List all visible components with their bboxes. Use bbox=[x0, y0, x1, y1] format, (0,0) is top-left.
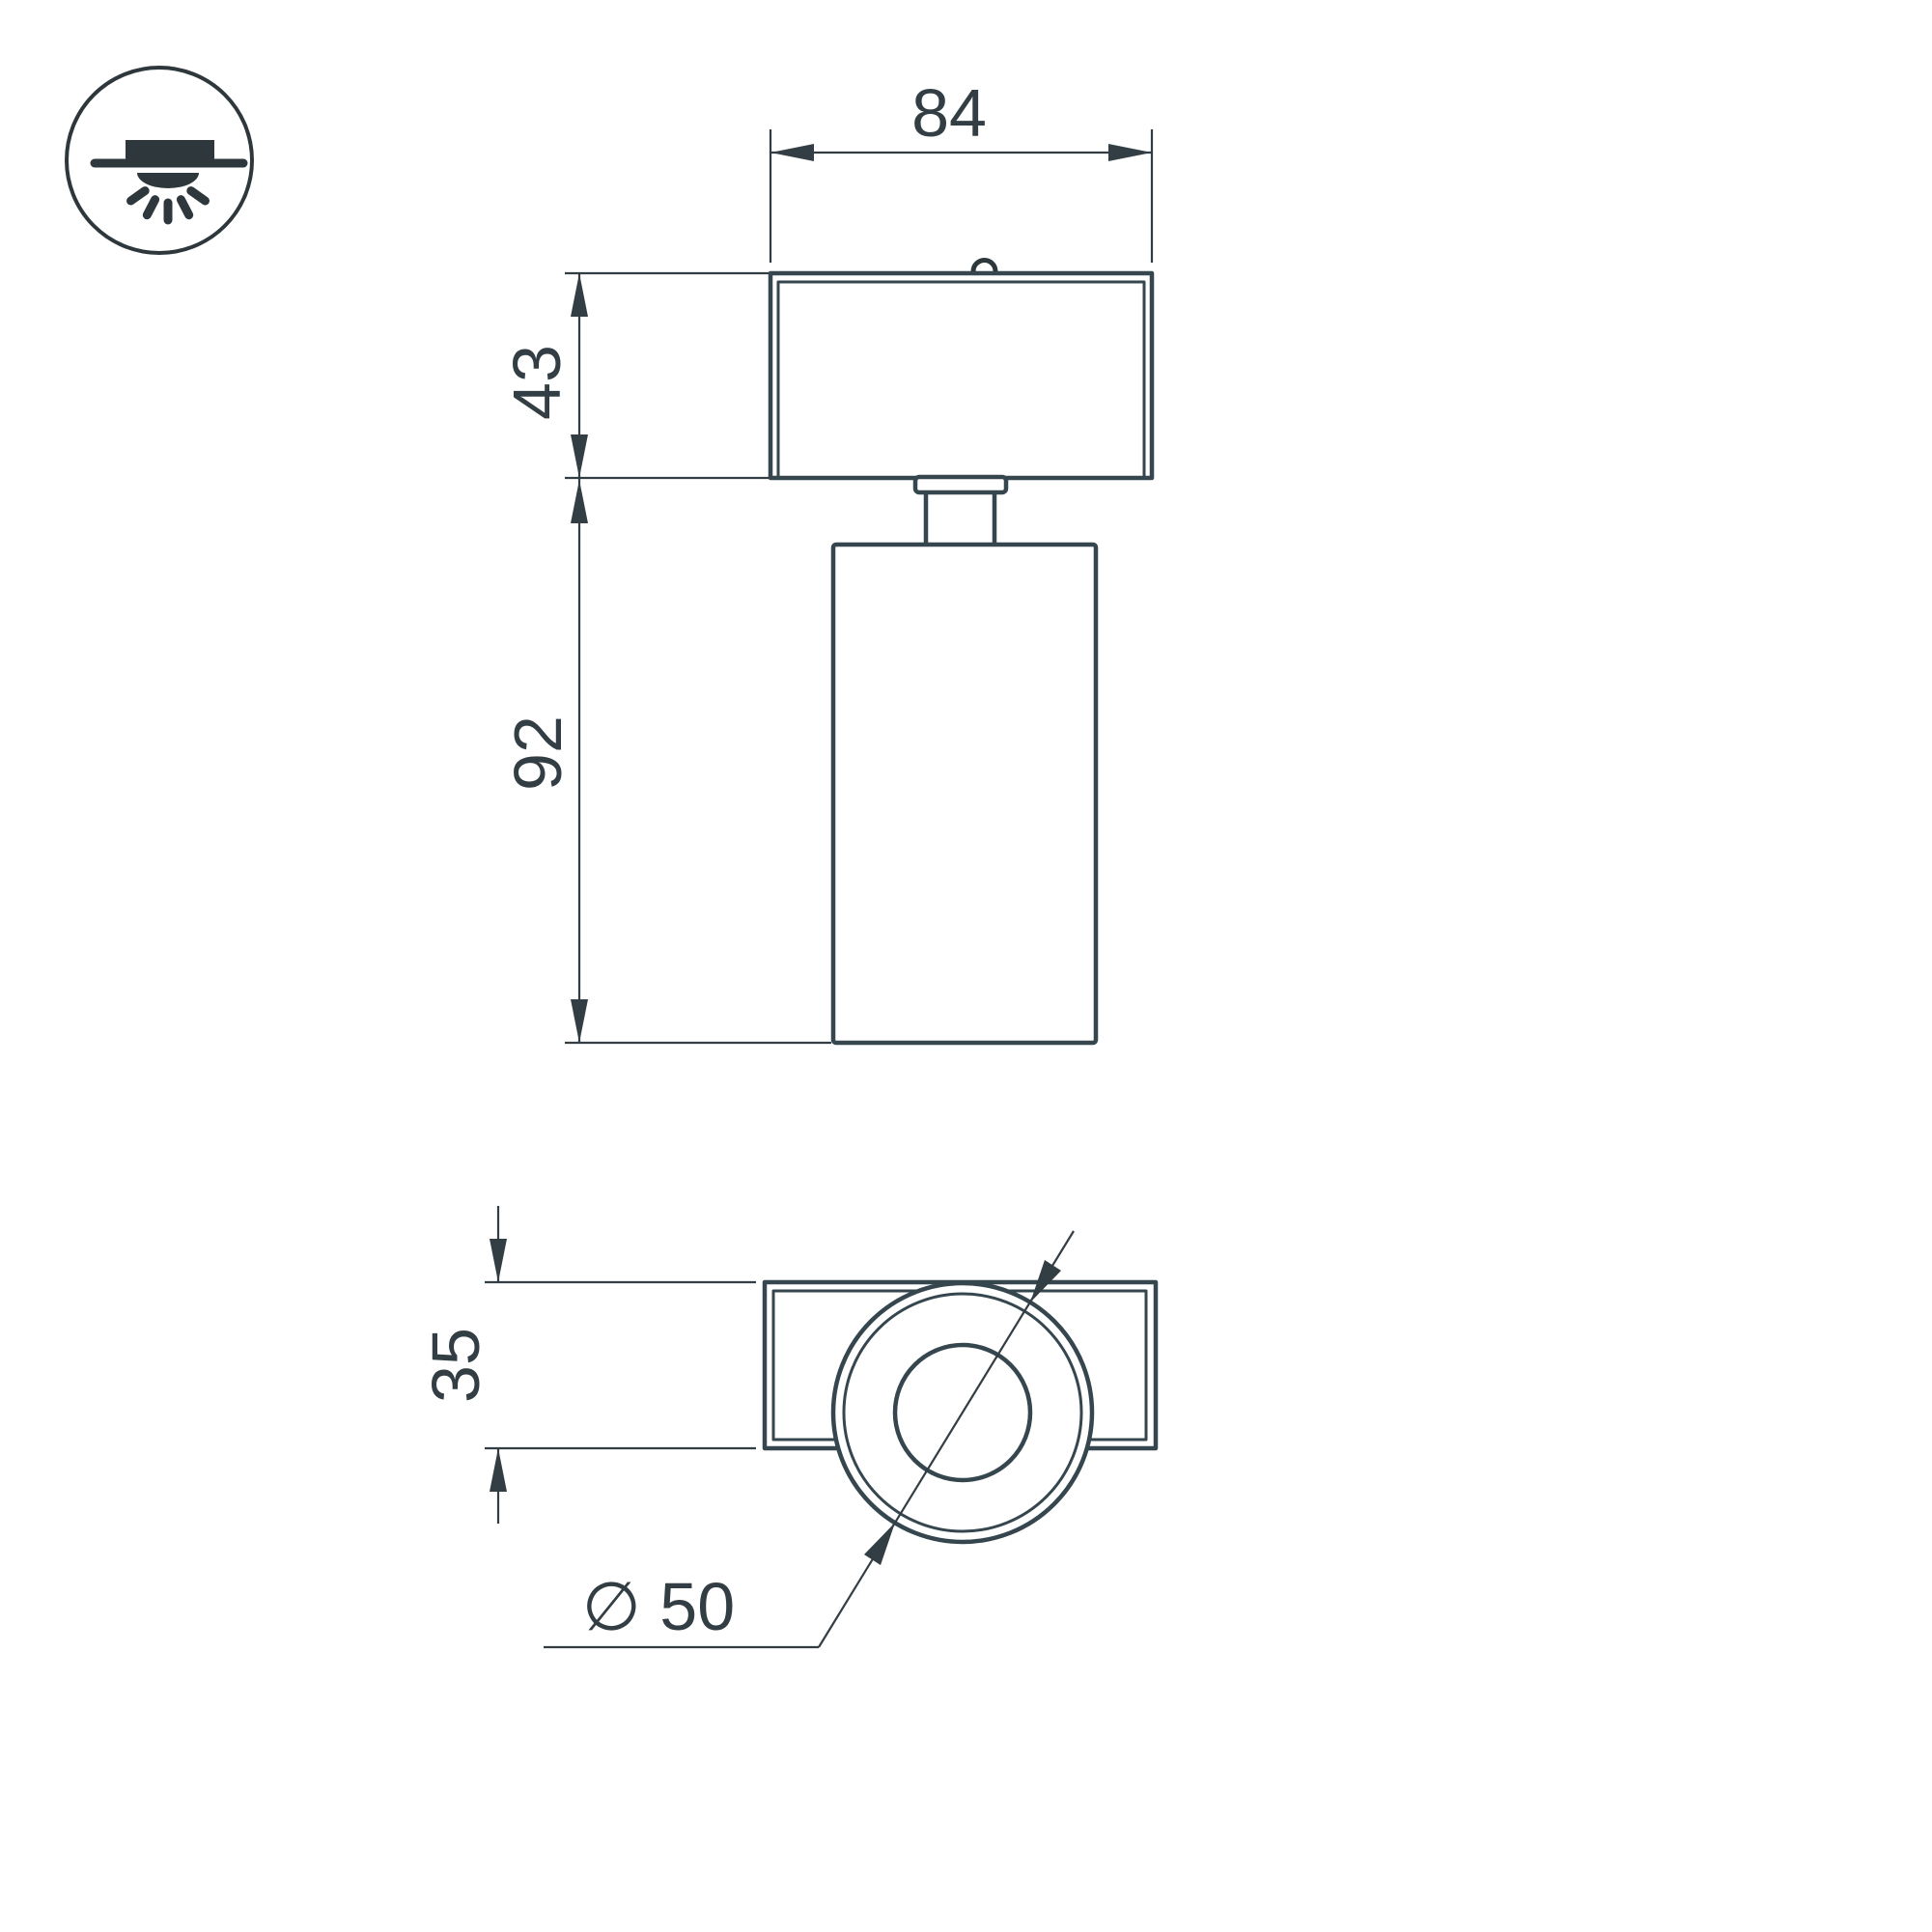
dimension-head-and-body-height: 43 92 bbox=[499, 273, 831, 1043]
top-knob bbox=[973, 261, 995, 272]
dimension-label-diameter-50: ∅ 50 bbox=[582, 1569, 735, 1644]
front-view bbox=[770, 261, 1152, 1044]
light-ray bbox=[147, 200, 154, 215]
dimension-label-43: 43 bbox=[499, 345, 574, 420]
arrowhead-down bbox=[490, 1239, 507, 1282]
swivel-flange bbox=[915, 477, 1006, 492]
arrowhead-down bbox=[571, 434, 588, 478]
dimension-top-width: 84 bbox=[770, 75, 1152, 263]
cylinder-body-outline bbox=[833, 545, 1096, 1043]
icon-light-rays bbox=[131, 191, 206, 220]
light-ray bbox=[181, 200, 188, 215]
technical-drawing: 84 43 92 35 ∅ 50 bbox=[0, 0, 1932, 1932]
arrowhead-right bbox=[1108, 144, 1152, 161]
dimension-plate-depth: 35 bbox=[418, 1206, 756, 1524]
arrowhead-up bbox=[571, 480, 588, 523]
dimension-label-92: 92 bbox=[500, 715, 575, 791]
drawing-canvas: 84 43 92 35 ∅ 50 bbox=[0, 0, 1932, 1932]
arrowhead-up bbox=[490, 1448, 507, 1492]
arrowhead-down bbox=[571, 999, 588, 1043]
icon-canopy bbox=[126, 140, 214, 159]
dimension-label-35: 35 bbox=[418, 1328, 493, 1403]
arrowhead-lower bbox=[864, 1523, 895, 1565]
mount-head-outline bbox=[770, 273, 1152, 478]
dimension-label-84: 84 bbox=[911, 75, 987, 151]
icon-lamp-dome bbox=[137, 173, 199, 188]
arrowhead-up bbox=[571, 273, 588, 317]
surface-mount-icon bbox=[67, 68, 252, 253]
mount-head-inner-line bbox=[778, 282, 1144, 477]
light-ray bbox=[191, 191, 206, 201]
bottom-view bbox=[765, 1282, 1156, 1542]
arrowhead-left bbox=[770, 144, 814, 161]
light-ray bbox=[131, 191, 146, 201]
